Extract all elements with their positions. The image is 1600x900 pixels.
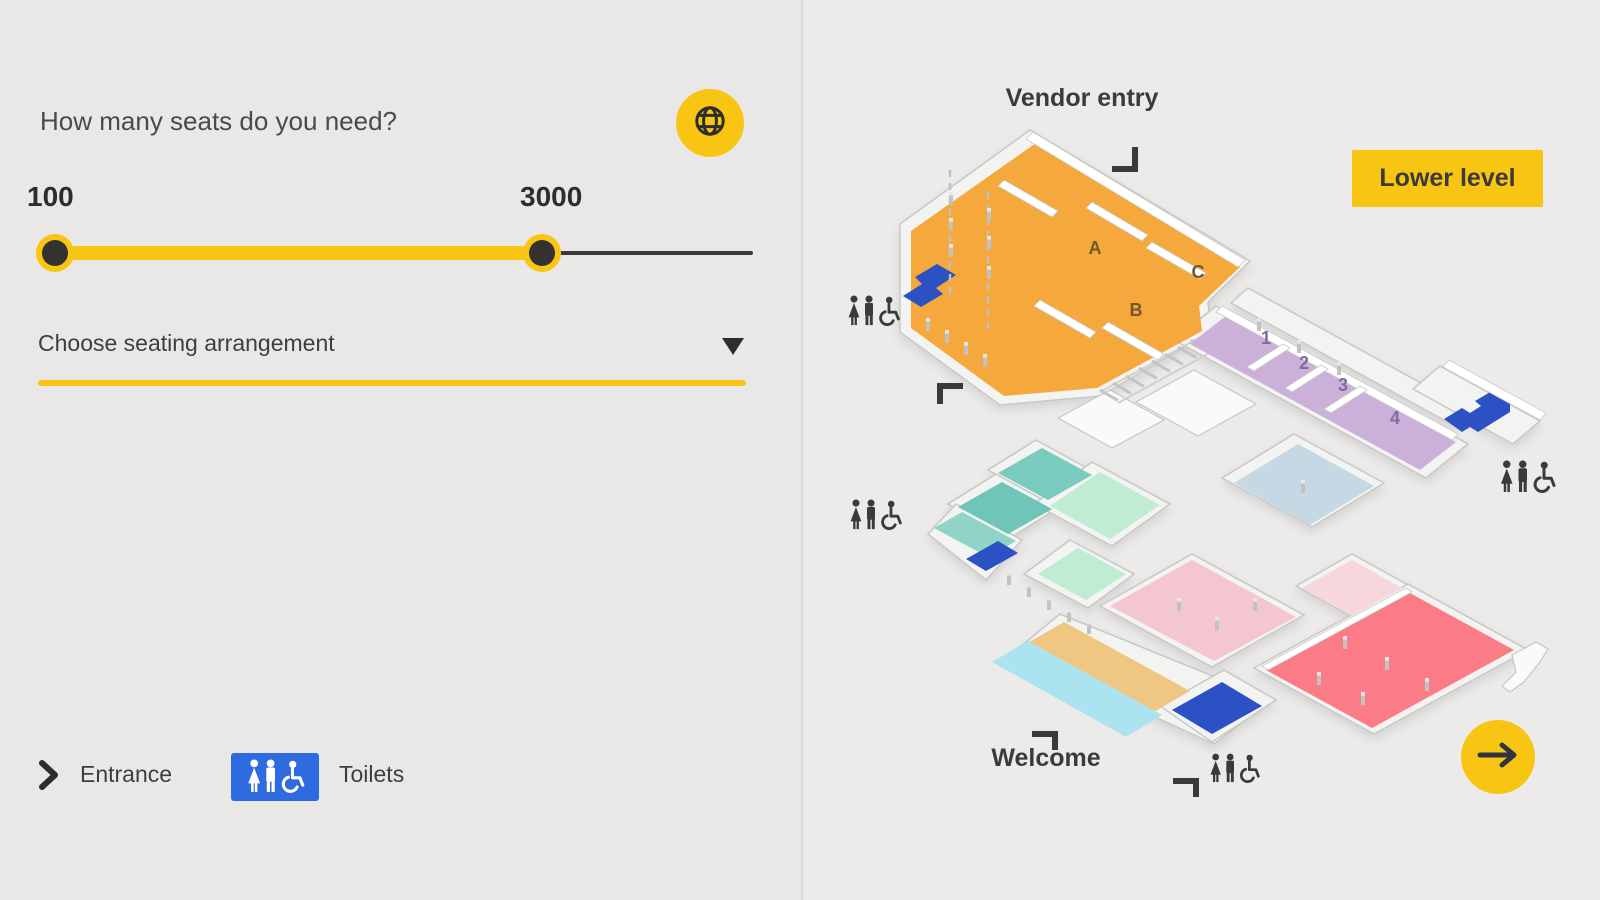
hall-b-label: B — [1130, 300, 1143, 320]
room-4-label: 4 — [1390, 408, 1400, 428]
room-1-label: 1 — [1261, 328, 1271, 348]
slider-min-value: 100 — [27, 181, 74, 213]
hall-red-floor[interactable] — [1266, 592, 1514, 728]
dropdown-underline — [38, 380, 746, 386]
seating-arrangement-dropdown[interactable]: Choose seating arrangement — [38, 330, 335, 357]
welcome-label: Welcome — [966, 744, 1126, 773]
slider-handle-max-knob — [529, 240, 555, 266]
seat-selector-panel: How many seats do you need? 100 3000 Cho… — [0, 0, 803, 900]
slider-max-value: 3000 — [520, 181, 582, 213]
next-button[interactable] — [1461, 720, 1535, 794]
vendor-entry-label: Vendor entry — [952, 84, 1212, 113]
toilets-icon — [1501, 461, 1554, 493]
floorplan-panel: A C B 1 2 3 4 Vendor entry Welcome Lower… — [803, 0, 1600, 900]
arrow-right-icon — [1476, 740, 1520, 775]
seats-question-heading: How many seats do you need? — [40, 106, 397, 137]
entrance-marker-vendor — [1112, 147, 1135, 169]
toilets-icon — [851, 500, 901, 530]
entrance-chevron-icon — [36, 757, 62, 798]
room-3-label: 3 — [1338, 375, 1348, 395]
slider-track-fill[interactable] — [38, 246, 561, 260]
hall-c-label: C — [1192, 262, 1205, 282]
chevron-down-icon[interactable] — [722, 338, 744, 355]
toilets-legend-icon — [231, 753, 319, 801]
globe-icon — [691, 102, 729, 145]
lower-level-button[interactable]: Lower level — [1352, 150, 1543, 207]
entrance-marker-west — [940, 386, 963, 404]
room-2-label: 2 — [1299, 353, 1309, 373]
slider-handle-min-knob — [42, 240, 68, 266]
toilets-icon — [1210, 754, 1258, 782]
entrance-legend-label: Entrance — [80, 761, 172, 788]
toilets-legend-label: Toilets — [339, 761, 404, 788]
toilets-icon — [849, 296, 899, 326]
hall-a-label: A — [1089, 238, 1102, 258]
entrance-marker-south — [1173, 781, 1196, 797]
language-globe-button[interactable] — [676, 89, 744, 157]
